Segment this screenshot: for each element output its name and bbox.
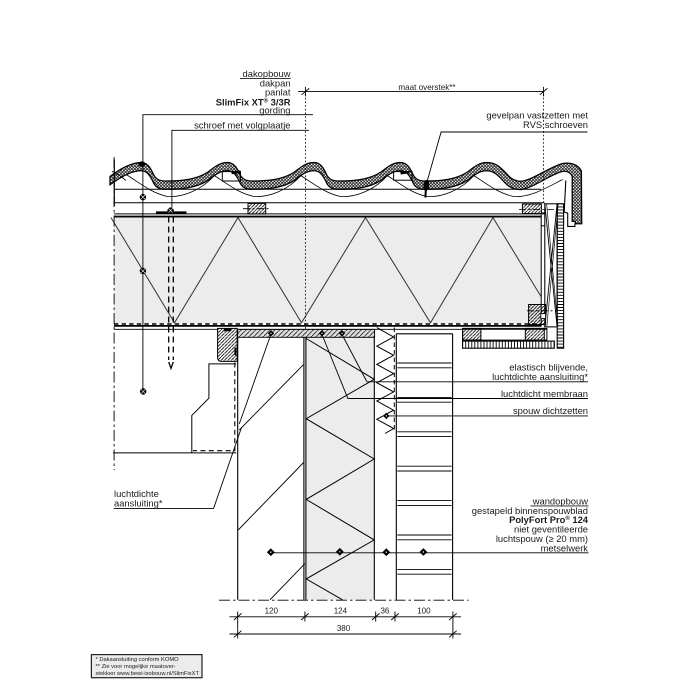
svg-text:** Zie voor mogelijke maatover: ** Zie voor mogelijke maatover- — [96, 664, 176, 670]
svg-text:stekken www.bewi-isobouw.nl/Sl: stekken www.bewi-isobouw.nl/SlimFixXT — [96, 671, 200, 677]
svg-text:gording: gording — [259, 105, 290, 116]
svg-text:RVS schroeven: RVS schroeven — [523, 119, 588, 130]
svg-text:spouw dichtzetten: spouw dichtzetten — [513, 405, 588, 416]
svg-text:120: 120 — [265, 607, 279, 616]
svg-text:* Dakaansluiting conform KOMO: * Dakaansluiting conform KOMO — [96, 657, 180, 663]
svg-text:luchtdichte aansluiting*: luchtdichte aansluiting* — [492, 371, 588, 382]
svg-text:380: 380 — [337, 624, 351, 633]
svg-text:100: 100 — [417, 607, 431, 616]
svg-text:aansluiting*: aansluiting* — [114, 497, 163, 508]
svg-text:luchtdicht membraan: luchtdicht membraan — [501, 388, 588, 399]
svg-text:schroef met volgplaatje: schroef met volgplaatje — [194, 120, 290, 131]
svg-text:124: 124 — [334, 607, 348, 616]
svg-text:metselwerk: metselwerk — [541, 542, 589, 553]
svg-text:maat overstek**: maat overstek** — [398, 83, 456, 92]
svg-text:36: 36 — [380, 607, 389, 616]
